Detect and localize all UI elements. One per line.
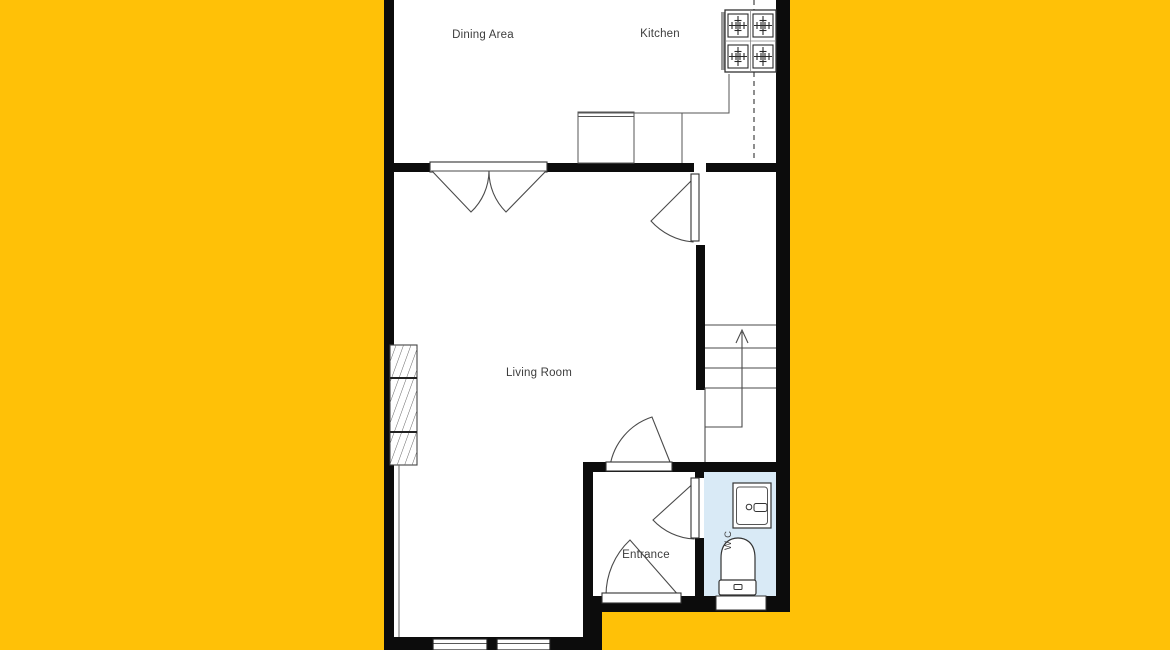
toilet-flush-button bbox=[734, 585, 742, 590]
wall-living-bottom bbox=[384, 637, 602, 650]
wall-right-outer bbox=[776, 0, 790, 612]
radiator bbox=[390, 345, 417, 465]
wall-living-stairhall bbox=[696, 245, 705, 390]
window bbox=[433, 639, 487, 650]
wall-entrance-left bbox=[583, 462, 593, 610]
wc-label: W.C bbox=[723, 531, 734, 550]
entrance-label: Entrance bbox=[622, 549, 670, 561]
front-door-leaf bbox=[602, 593, 681, 603]
radiator-hatch bbox=[390, 345, 417, 465]
wc-window bbox=[716, 596, 766, 610]
wall-entrance-wc-stub bbox=[695, 472, 704, 478]
window bbox=[497, 639, 550, 650]
floor-plan-page: Dining Area Kitchen Living Room Entrance… bbox=[0, 0, 1170, 650]
stairhall-door-leaf bbox=[691, 174, 699, 241]
washbasin-drain bbox=[746, 504, 752, 510]
wc-door-leaf bbox=[691, 478, 699, 538]
kitchen-label: Kitchen bbox=[640, 28, 680, 40]
door-frame-notch bbox=[694, 163, 706, 172]
dining-area-label: Dining Area bbox=[452, 29, 514, 41]
floor-plan-image: Dining Area Kitchen Living Room Entrance… bbox=[0, 0, 1170, 650]
stove-icon bbox=[721, 10, 776, 72]
washbasin-faucet bbox=[754, 504, 767, 512]
wall-left-outer bbox=[384, 0, 394, 650]
washbasin bbox=[733, 483, 771, 528]
entrance-top-door-leaf bbox=[606, 462, 672, 471]
living-room-label: Living Room bbox=[506, 367, 572, 379]
